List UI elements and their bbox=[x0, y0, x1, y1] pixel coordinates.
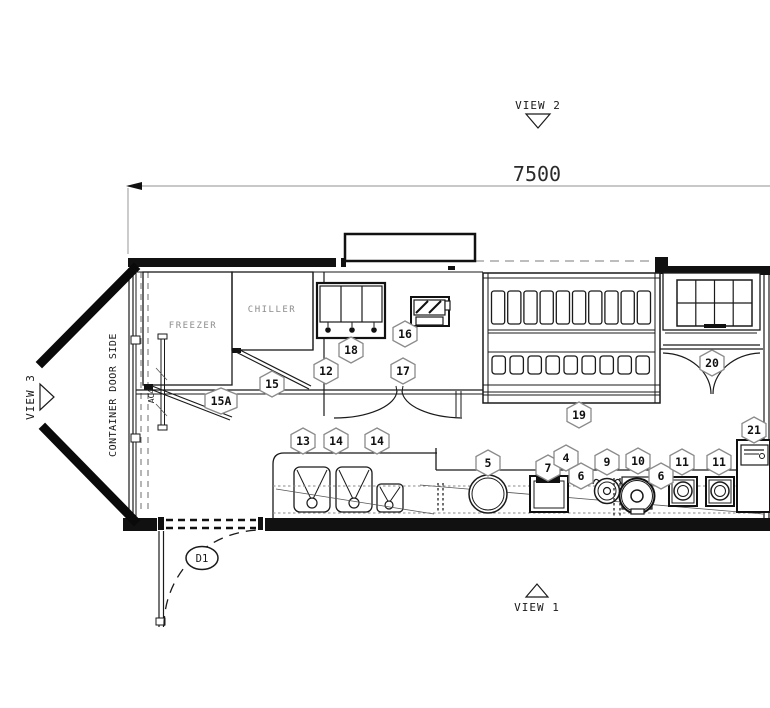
svg-text:14: 14 bbox=[329, 434, 343, 448]
grill-unit-16 bbox=[411, 297, 450, 326]
svg-text:11: 11 bbox=[712, 455, 726, 469]
callout-10: 10 bbox=[626, 448, 650, 474]
callout-17: 17 bbox=[391, 358, 415, 384]
callout-15: 15 bbox=[260, 371, 284, 397]
svg-text:5: 5 bbox=[485, 456, 492, 470]
chiller-label: CHILLER bbox=[248, 305, 296, 315]
callout-15a: 15A bbox=[205, 388, 237, 414]
callout-14a: 14 bbox=[324, 428, 348, 454]
view-2-label: VIEW 2 bbox=[515, 99, 561, 112]
callout-5: 5 bbox=[476, 450, 500, 476]
ac-label: AC4 bbox=[147, 389, 156, 404]
svg-text:15: 15 bbox=[265, 377, 279, 391]
callout-16: 16 bbox=[393, 321, 417, 347]
svg-text:15A: 15A bbox=[211, 394, 232, 408]
freezer-label: FREEZER bbox=[169, 321, 217, 331]
door-d1: D1 bbox=[156, 517, 263, 627]
burner-unit-9 bbox=[593, 479, 621, 504]
svg-text:17: 17 bbox=[396, 364, 410, 378]
exhaust-hood bbox=[345, 234, 475, 270]
callout-6a: 6 bbox=[569, 463, 593, 489]
svg-text:6: 6 bbox=[578, 469, 585, 483]
svg-text:19: 19 bbox=[572, 408, 586, 422]
callout-18: 18 bbox=[339, 337, 363, 363]
svg-text:10: 10 bbox=[631, 454, 645, 468]
view-3-label: VIEW 3 bbox=[24, 374, 37, 420]
shelving-unit-19 bbox=[483, 273, 660, 403]
dimension-label: 7500 bbox=[513, 162, 561, 186]
callout-19: 19 bbox=[567, 402, 591, 428]
callout-14b: 14 bbox=[365, 428, 389, 454]
callout-11b: 11 bbox=[707, 449, 731, 475]
svg-text:9: 9 bbox=[604, 455, 611, 469]
svg-text:6: 6 bbox=[658, 469, 665, 483]
range-unit-18 bbox=[317, 283, 385, 338]
svg-text:21: 21 bbox=[747, 423, 761, 437]
view-1-label: VIEW 1 bbox=[514, 601, 560, 614]
view-3-marker: VIEW 3 bbox=[24, 374, 54, 420]
griddle-unit-21 bbox=[737, 440, 770, 512]
view-2-marker: VIEW 2 bbox=[515, 99, 561, 128]
svg-text:16: 16 bbox=[398, 327, 412, 341]
callout-12: 12 bbox=[314, 358, 338, 384]
view-1-marker: VIEW 1 bbox=[514, 584, 560, 614]
hob-unit-11b bbox=[706, 477, 734, 506]
callout-20: 20 bbox=[700, 350, 724, 376]
svg-text:20: 20 bbox=[705, 356, 719, 370]
svg-text:4: 4 bbox=[563, 451, 570, 465]
container-door-side-label: CONTAINER DOOR SIDE bbox=[108, 333, 119, 457]
callout-21: 21 bbox=[742, 417, 766, 443]
svg-text:11: 11 bbox=[675, 455, 689, 469]
floor-plan-canvas: 7500 VIEW 2 VIEW 1 VIEW 3 bbox=[0, 0, 770, 708]
callout-13: 13 bbox=[291, 428, 315, 454]
svg-text:14: 14 bbox=[370, 434, 384, 448]
door-d1-tag: D1 bbox=[196, 553, 209, 565]
interior-partitions bbox=[136, 272, 483, 416]
svg-text:13: 13 bbox=[296, 434, 310, 448]
double-door-17 bbox=[334, 386, 462, 418]
callout-11a: 11 bbox=[670, 449, 694, 475]
callout-9: 9 bbox=[595, 449, 619, 475]
round-unit-5 bbox=[469, 475, 507, 513]
sink-counter bbox=[273, 448, 437, 518]
unit-7 bbox=[530, 476, 568, 512]
svg-text:7: 7 bbox=[545, 461, 552, 475]
freezer-room: FREEZER bbox=[136, 272, 483, 420]
floor-plan-page: 7500 VIEW 2 VIEW 1 VIEW 3 bbox=[0, 0, 770, 708]
svg-text:12: 12 bbox=[319, 364, 333, 378]
ac-unit: AC4 bbox=[147, 334, 167, 430]
container-open-doors bbox=[42, 269, 134, 520]
svg-text:18: 18 bbox=[344, 343, 358, 357]
